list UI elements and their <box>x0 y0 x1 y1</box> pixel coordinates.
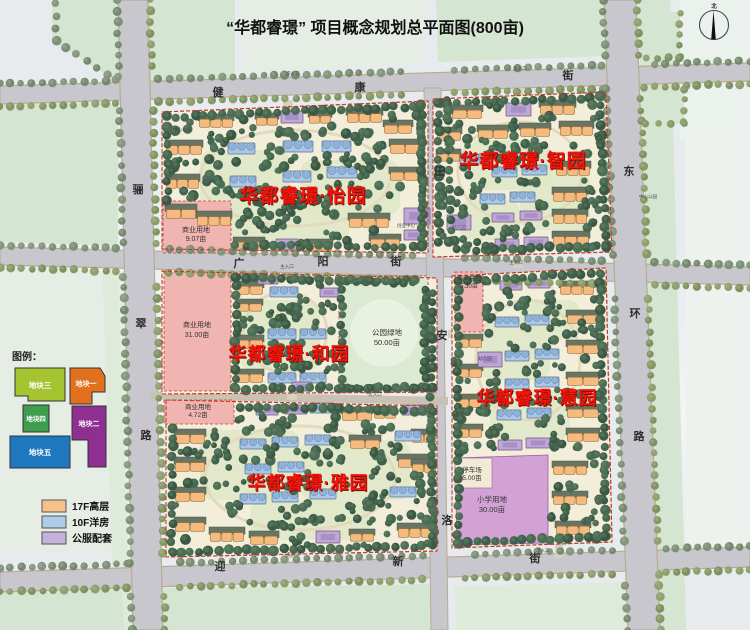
svg-text:阳: 阳 <box>318 254 329 268</box>
svg-text:10F洋房: 10F洋房 <box>72 516 109 529</box>
svg-text:商业用地: 商业用地 <box>457 274 481 282</box>
svg-text:街: 街 <box>562 68 574 82</box>
svg-text:洛: 洛 <box>442 513 454 527</box>
svg-text:幼儿园: 幼儿园 <box>452 224 466 231</box>
svg-text:商业用地: 商业用地 <box>183 320 211 329</box>
svg-text:街: 街 <box>529 551 541 565</box>
svg-text:31.00亩: 31.00亩 <box>185 330 210 339</box>
svg-text:中心公园: 中心公园 <box>639 193 657 200</box>
svg-text:地块四: 地块四 <box>26 414 46 423</box>
svg-text:地块五: 地块五 <box>29 447 52 457</box>
svg-text:幼儿园: 幼儿园 <box>478 355 492 362</box>
svg-text:次入口: 次入口 <box>286 70 300 77</box>
svg-text:广: 广 <box>234 256 245 270</box>
svg-text:30.00亩: 30.00亩 <box>479 504 506 514</box>
svg-text:华都睿璟·怡园: 华都睿璟·怡园 <box>239 184 366 207</box>
svg-text:北: 北 <box>711 2 717 10</box>
svg-text:康: 康 <box>355 80 367 94</box>
svg-text:17F高层: 17F高层 <box>72 500 109 513</box>
svg-text:翠: 翠 <box>136 317 147 330</box>
svg-text:次入口: 次入口 <box>286 551 300 558</box>
svg-text:华都睿璟·慧园: 华都睿璟·慧园 <box>477 387 598 408</box>
svg-text:“华都睿璟” 项目概念规划总平面图(800亩): “华都睿璟” 项目概念规划总平面图(800亩) <box>226 18 524 37</box>
svg-text:华都睿璟·智园: 华都睿璟·智园 <box>459 149 586 172</box>
svg-text:4.72亩: 4.72亩 <box>188 410 208 419</box>
svg-text:5.00亩: 5.00亩 <box>462 473 482 482</box>
svg-text:骊: 骊 <box>133 183 144 196</box>
svg-text:路: 路 <box>141 428 153 442</box>
svg-text:商业用地: 商业用地 <box>182 225 210 234</box>
svg-text:公园绿地: 公园绿地 <box>372 327 402 337</box>
svg-text:50.00亩: 50.00亩 <box>374 337 401 347</box>
svg-text:商业用地: 商业用地 <box>185 402 212 411</box>
svg-text:9.07亩: 9.07亩 <box>186 234 207 243</box>
svg-text:次入口: 次入口 <box>368 391 382 398</box>
svg-text:新: 新 <box>393 554 404 568</box>
svg-text:华都睿璟·和园: 华都睿璟·和园 <box>229 343 350 364</box>
svg-text:公服配套: 公服配套 <box>72 532 113 545</box>
svg-text:华都睿璟·雅园: 华都睿璟·雅园 <box>248 472 369 493</box>
svg-text:田: 田 <box>435 165 446 178</box>
svg-text:创业中心: 创业中心 <box>397 222 415 229</box>
svg-text:主入口: 主入口 <box>509 259 523 266</box>
svg-text:环: 环 <box>630 307 641 320</box>
svg-text:次入口: 次入口 <box>536 547 550 554</box>
svg-text:地块三: 地块三 <box>29 380 52 390</box>
svg-text:主入口: 主入口 <box>280 263 294 270</box>
svg-text:停车场: 停车场 <box>462 465 482 474</box>
svg-text:安: 安 <box>437 328 448 342</box>
svg-text:街: 街 <box>390 254 402 268</box>
svg-text:次入口: 次入口 <box>513 65 527 72</box>
svg-text:地块二: 地块二 <box>79 419 100 428</box>
svg-text:路: 路 <box>634 429 646 443</box>
svg-text:5.30亩: 5.30亩 <box>460 282 478 290</box>
svg-text:迎: 迎 <box>215 559 226 573</box>
svg-text:地块一: 地块一 <box>76 379 97 388</box>
svg-text:图例：: 图例： <box>12 350 42 363</box>
svg-text:中心公园: 中心公园 <box>173 126 191 133</box>
svg-text:健: 健 <box>213 85 225 99</box>
svg-text:小学用地: 小学用地 <box>477 494 507 504</box>
svg-text:东: 东 <box>624 164 635 178</box>
